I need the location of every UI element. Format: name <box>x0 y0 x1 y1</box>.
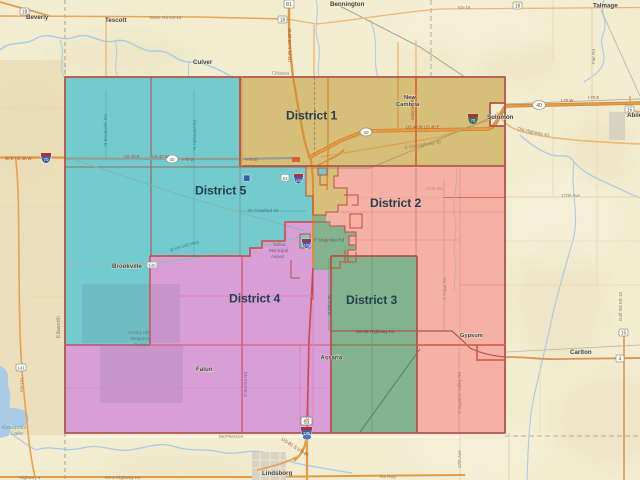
svg-text:Municipal: Municipal <box>269 248 288 253</box>
svg-text:Tescott: Tescott <box>105 17 127 24</box>
svg-text:Solomon Rd: Solomon Rd <box>410 96 415 120</box>
svg-text:70: 70 <box>43 157 49 162</box>
svg-text:US-81: US-81 <box>305 411 310 424</box>
svg-text:Club Rd: Club Rd <box>426 186 443 191</box>
svg-text:I-70 E: I-70 E <box>588 95 599 100</box>
svg-text:Brookville: Brookville <box>112 263 142 270</box>
svg-text:Ellsworth: Ellsworth <box>56 316 62 338</box>
svg-text:15: 15 <box>621 331 627 337</box>
svg-text:District 4: District 4 <box>229 292 280 306</box>
svg-text:Cambria: Cambria <box>396 102 420 108</box>
svg-text:Dave Rd K8-18: Dave Rd K8-18 <box>150 15 182 20</box>
svg-text:K8-4E Highway K4: K8-4E Highway K4 <box>356 329 395 334</box>
svg-text:N Brookville Rd: N Brookville Rd <box>103 114 108 146</box>
svg-text:Bennington: Bennington <box>330 1 365 8</box>
svg-text:Carlton: Carlton <box>570 349 592 356</box>
svg-text:Solomon: Solomon <box>487 114 514 121</box>
svg-text:McPherson: McPherson <box>219 434 244 440</box>
svg-text:K8-4 Highway K4: K8-4 Highway K4 <box>105 475 141 480</box>
svg-text:S Ohio St: S Ohio St <box>327 295 332 315</box>
svg-text:Highway 4: Highway 4 <box>19 475 41 480</box>
svg-text:US 40 E: US 40 E <box>124 154 140 159</box>
svg-text:District 2: District 2 <box>370 196 421 210</box>
svg-text:135: 135 <box>303 243 310 248</box>
svg-text:141: 141 <box>17 366 25 371</box>
svg-text:S Gypsum Valley Rd: S Gypsum Valley Rd <box>457 372 462 414</box>
svg-text:N Halstead Rd: N Halstead Rd <box>192 120 197 150</box>
svg-text:Gypsum: Gypsum <box>460 333 483 339</box>
svg-text:Airport: Airport <box>271 254 285 259</box>
svg-text:Lindsborg: Lindsborg <box>262 470 292 477</box>
svg-text:18: 18 <box>280 18 286 24</box>
svg-text:Beverly: Beverly <box>26 14 49 21</box>
svg-text:K8-18: K8-18 <box>458 5 471 10</box>
svg-text:Assaria: Assaria <box>321 356 343 362</box>
svg-text:40 E US 40 W: 40 E US 40 W <box>5 156 32 161</box>
svg-text:1700 Ave: 1700 Ave <box>561 193 581 198</box>
svg-text:W Crawford St: W Crawford St <box>248 208 279 213</box>
svg-text:E Magnolia Rd: E Magnolia Rd <box>314 238 345 243</box>
svg-text:4: 4 <box>619 357 622 363</box>
svg-text:135: 135 <box>295 178 302 183</box>
svg-text:I-70 W: I-70 W <box>182 157 194 162</box>
svg-text:Talmage: Talmage <box>593 3 618 10</box>
svg-text:K4 Hwy: K4 Hwy <box>380 474 397 479</box>
svg-text:Culver: Culver <box>193 59 213 66</box>
svg-text:Ottawa: Ottawa <box>272 71 289 77</box>
svg-text:Fair Rd: Fair Rd <box>591 48 596 64</box>
svg-text:140: 140 <box>149 263 157 268</box>
svg-text:Lake: Lake <box>11 431 23 437</box>
svg-text:40: 40 <box>536 103 542 109</box>
svg-text:Range: Range <box>134 342 148 347</box>
svg-text:Weapons: Weapons <box>130 336 150 341</box>
svg-text:District 1: District 1 <box>286 109 337 123</box>
svg-text:18: 18 <box>515 4 521 10</box>
svg-text:Smoky Hill: Smoky Hill <box>128 330 149 335</box>
svg-text:US-81 N K8-18 W: US-81 N K8-18 W <box>287 28 292 62</box>
svg-text:40: 40 <box>363 130 369 135</box>
svg-text:Abilene: Abilene <box>627 112 640 119</box>
svg-text:K8-141: K8-141 <box>19 377 24 392</box>
svg-text:Salina: Salina <box>273 242 286 247</box>
svg-text:Golf Rd K8-15: Golf Rd K8-15 <box>618 291 623 321</box>
svg-text:Falun: Falun <box>196 366 213 373</box>
svg-text:District 3: District 3 <box>346 293 397 307</box>
svg-text:US 40 W US 40 E: US 40 W US 40 E <box>406 125 440 130</box>
svg-text:27th Ave: 27th Ave <box>457 450 462 468</box>
svg-text:District 5: District 5 <box>195 184 246 198</box>
svg-text:I-70 W: I-70 W <box>561 98 573 103</box>
svg-text:S Burma Rd: S Burma Rd <box>243 372 248 397</box>
svg-text:S Rapp Rd: S Rapp Rd <box>442 277 447 300</box>
svg-text:40: 40 <box>169 157 175 162</box>
svg-text:I-70 E: I-70 E <box>246 157 257 162</box>
svg-text:US 40 W: US 40 W <box>152 154 169 159</box>
svg-text:70: 70 <box>471 118 476 123</box>
svg-text:81: 81 <box>286 2 292 8</box>
svg-text:81: 81 <box>283 176 288 181</box>
